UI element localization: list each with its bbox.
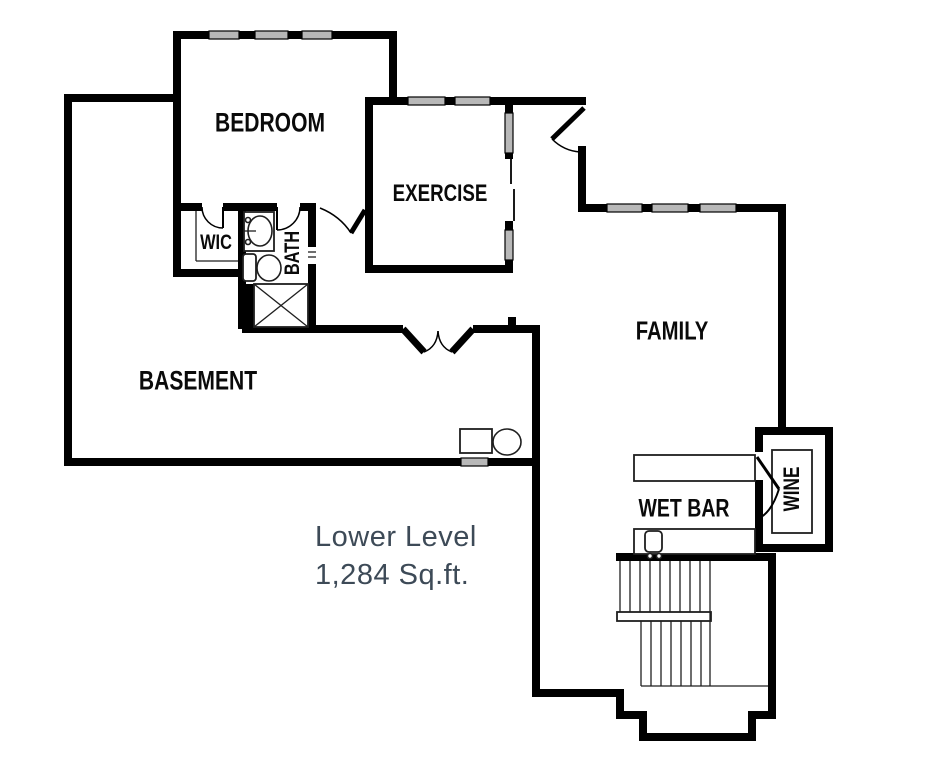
room-label-family: FAMILY <box>636 316 709 347</box>
room-label-wic: WIC <box>200 231 232 255</box>
room-label-bedroom: BEDROOM <box>215 108 325 139</box>
room-label-exercise: EXERCISE <box>393 180 488 208</box>
room-label-wet-bar: WET BAR <box>639 495 730 524</box>
caption-sqft-line: 1,284 Sq.ft. <box>315 556 477 594</box>
room-label-bath: BATH <box>281 231 305 275</box>
room-label-basement: BASEMENT <box>139 366 257 397</box>
caption-level-line: Lower Level <box>315 518 477 556</box>
room-label-wine: WINE <box>779 467 805 512</box>
floor-plan-page: BEDROOMEXERCISEWICBATHBASEMENTFAMILYWET … <box>0 0 935 768</box>
area-caption: Lower Level 1,284 Sq.ft. <box>315 518 477 594</box>
